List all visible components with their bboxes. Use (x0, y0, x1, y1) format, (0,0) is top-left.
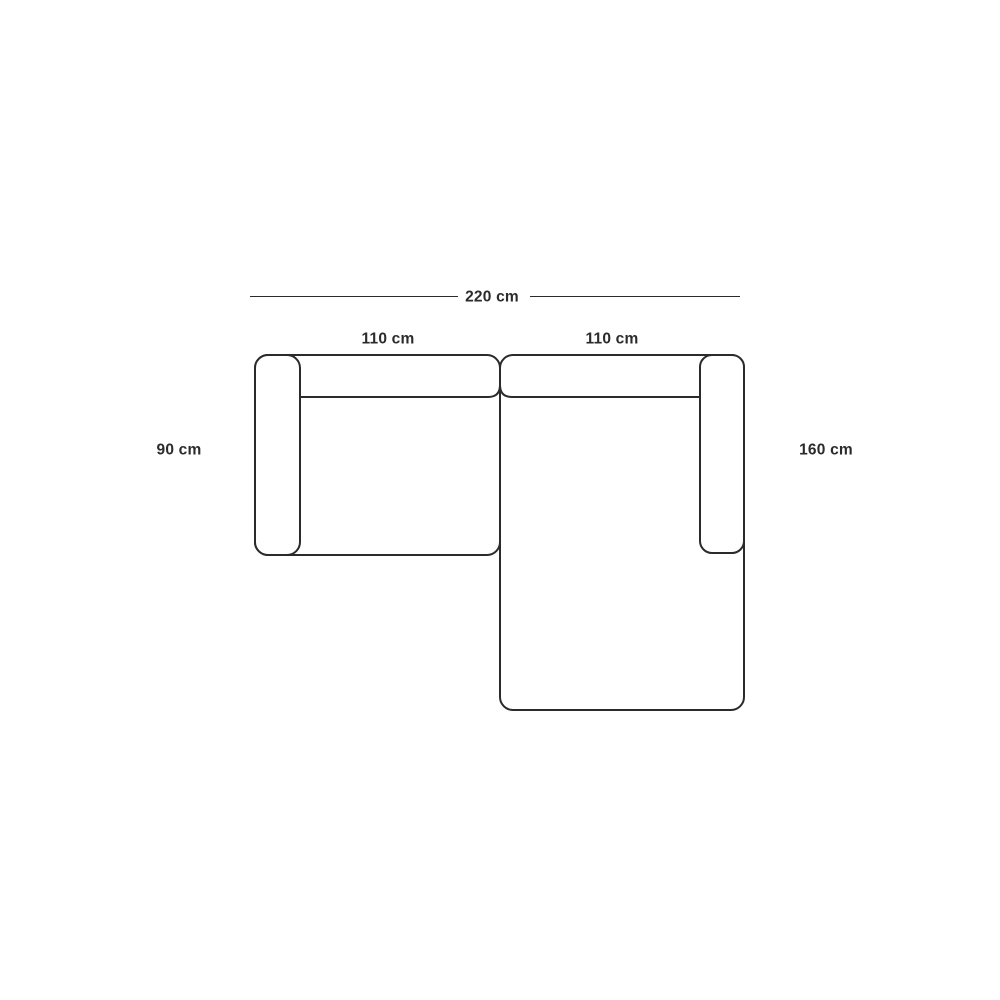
left-module-depth-label: 90 cm (157, 442, 202, 458)
total-width-label: 220 cm (465, 289, 519, 305)
right-module-width-label: 110 cm (586, 331, 639, 347)
chaise-depth-label: 160 cm (799, 442, 853, 458)
total-width-dimension-line-left (250, 296, 458, 297)
sofa-right-armrest (700, 355, 744, 553)
sofa-dimension-diagram: 220 cm 110 cm 110 cm 90 cm 160 cm (0, 0, 1000, 1000)
left-module-width-label: 110 cm (362, 331, 415, 347)
sofa-left-armrest (255, 355, 300, 555)
sofa-top-view-drawing (0, 0, 1000, 1000)
total-width-dimension-line-right (530, 296, 740, 297)
